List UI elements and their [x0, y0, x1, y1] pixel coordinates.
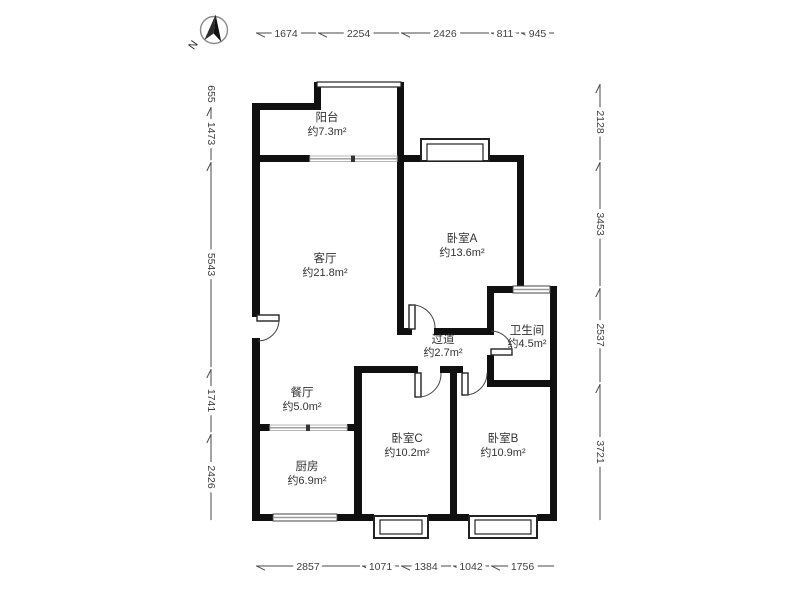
dimension-chain-bottom: 2857 1071 1384 1042 1756 [256, 561, 554, 573]
dim-bottom-1: 2857 [296, 561, 320, 573]
balcony-railing [317, 82, 401, 87]
bedroomA-door [409, 305, 435, 329]
bathroom-window [513, 286, 550, 293]
doors [257, 305, 512, 397]
room-area-balcony: 约7.3m² [307, 125, 346, 138]
dim-top-1: 1674 [274, 28, 298, 40]
balcony-sliding-door [310, 156, 397, 163]
room-name-living: 客厅 [314, 251, 337, 265]
dim-left-2: 1473 [205, 122, 217, 146]
floor-plan-page: N [0, 0, 800, 600]
kitchen-sliding-door [270, 425, 347, 432]
dim-bottom-2: 1071 [369, 561, 393, 573]
room-name-hallway: 过道 [432, 332, 455, 346]
room-name-bedroomB: 卧室B [488, 431, 519, 445]
room-name-bathroom: 卫生间 [510, 323, 545, 337]
dim-bottom-4: 1042 [459, 561, 483, 573]
compass-n-label: N [186, 39, 200, 52]
dim-top-4: 811 [497, 28, 514, 40]
bedroomA-bay-window [421, 139, 489, 161]
room-area-bedroomC: 约10.2m² [384, 446, 430, 459]
room-area-bathroom: 约4.5m² [507, 337, 546, 350]
dim-right-1: 2128 [594, 110, 606, 134]
bedroomB-door [462, 373, 487, 395]
room-area-hallway: 约2.7m² [423, 346, 462, 359]
dim-right-3: 2537 [594, 323, 606, 347]
bedroomC-bay-window [374, 516, 428, 538]
dim-left-4: 1741 [205, 389, 217, 413]
dim-bottom-5: 1756 [511, 561, 535, 573]
dim-right-4: 3721 [594, 440, 606, 464]
dim-top-2: 2254 [347, 28, 371, 40]
entrance-door [257, 315, 279, 341]
room-name-balcony: 阳台 [316, 110, 339, 124]
room-name-bedroomA: 卧室A [447, 231, 478, 245]
dim-top-3: 2426 [433, 28, 457, 40]
room-area-bedroomB: 约10.9m² [480, 446, 526, 459]
dim-right-2: 3453 [594, 212, 606, 236]
dim-bottom-3: 1384 [414, 561, 438, 573]
bedroomB-bay-window [469, 516, 537, 538]
dimension-chain-left: 655 1473 5543 1741 2426 [205, 83, 217, 520]
room-area-bedroomA: 约13.6m² [439, 246, 485, 259]
dimension-chain-top: 1674 2254 2426 811 945 [256, 28, 554, 40]
room-area-living: 约21.8m² [302, 266, 348, 279]
room-name-kitchen: 厨房 [296, 460, 319, 473]
dim-left-1: 655 [205, 85, 217, 103]
room-name-bedroomC: 卧室C [391, 431, 422, 445]
kitchen-window [273, 514, 337, 521]
bedroomC-door [415, 373, 441, 397]
dimension-chain-right: 2128 3453 2537 3721 [594, 84, 606, 520]
dim-left-5: 2426 [205, 465, 217, 489]
dim-top-5: 945 [529, 28, 547, 40]
floor-plan: N [0, 0, 800, 600]
room-area-kitchen: 约6.9m² [287, 474, 326, 487]
north-compass: N [186, 14, 227, 52]
room-name-dining: 餐厅 [291, 385, 314, 399]
room-area-dining: 约5.0m² [282, 400, 321, 413]
dim-left-3: 5543 [205, 253, 217, 277]
